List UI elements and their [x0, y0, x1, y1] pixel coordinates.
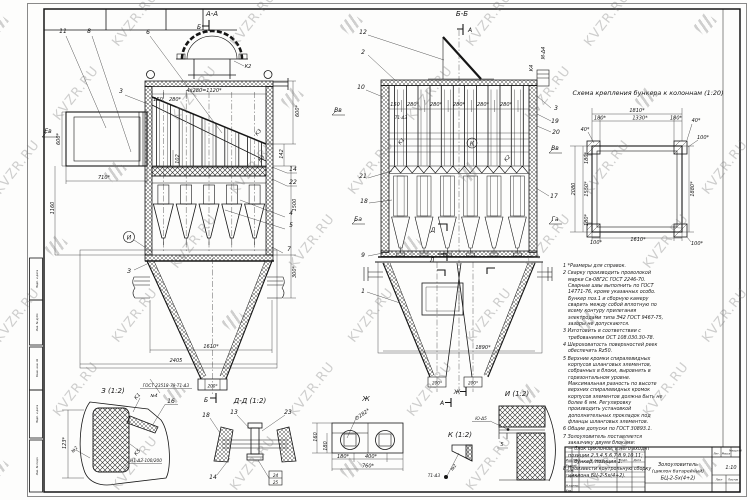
weld-label: №2 [449, 463, 458, 473]
note-item: 8 Произвести контрольную сборку циклона … [563, 467, 664, 480]
dim: 180* [594, 116, 607, 122]
detail-i: И (1:2) Ю-Δ5 5 [472, 390, 555, 481]
margin-stamp-column: Подп. и дата Инв. № дубл. Взам. инв. № П… [30, 258, 43, 492]
note-item: 3 Изготовить в соответствии с требования… [563, 329, 664, 342]
dim: 280* [453, 102, 466, 108]
dim: 123* [62, 436, 68, 449]
weld-label: №2 [70, 445, 79, 455]
cut-marker: А [439, 400, 444, 407]
dim: 2405 [170, 358, 183, 364]
dim: 200* [468, 381, 478, 386]
view-zh: Ж ∅282* 160 180 180* 400* 760* [312, 395, 403, 471]
dim: 760* [362, 464, 375, 470]
detail-dd: Д-Д (1:2) 18 13 23 14 24 25 [202, 397, 296, 485]
dim: 280* [500, 102, 513, 108]
hopper [133, 258, 285, 396]
dim: 200* [432, 381, 442, 386]
section-label: Б-Б [456, 10, 468, 18]
detail-label: И (1:2) [505, 390, 529, 398]
dim: 2080 [571, 183, 577, 196]
dim: 160 [313, 432, 319, 442]
mounting-scheme: Схема крепления бункера к колоннам (1:20… [570, 89, 724, 247]
note-item: 4 Шероховатость поверхностей реек обеспе… [563, 343, 664, 356]
margin-label: Подп. и дата [35, 269, 39, 288]
callout: 19 [551, 118, 559, 125]
dim: 40* [581, 127, 590, 133]
detail-label: З (1:2) [101, 387, 125, 395]
detail-marker: З [127, 268, 131, 275]
dim: 1610* [630, 237, 646, 243]
dim: 150 [153, 97, 163, 103]
level-marker: Ба [354, 216, 362, 223]
callout: 16 [167, 398, 175, 405]
dim: 100* [590, 240, 603, 246]
dim: 1330* [632, 116, 648, 122]
callout: 12 [359, 29, 367, 36]
level-marker: Ев [44, 128, 52, 135]
margin-label: Подп. и дата [35, 404, 39, 423]
weld-label: М-Δ4 [541, 47, 547, 60]
dim: 300* [292, 265, 298, 278]
cut-marker: А [467, 27, 472, 34]
inlet-duct [66, 112, 147, 166]
dim: 1880* [690, 181, 696, 197]
dim: 102 [175, 154, 181, 164]
tb-row-label: Н.контр. [566, 483, 579, 487]
tb-footer: Листов [727, 478, 738, 482]
callout: 6 [146, 29, 150, 36]
tb-footer: Лист [715, 478, 723, 482]
callout: 1 [361, 288, 365, 295]
callout: 4 [289, 210, 293, 217]
column-pads [587, 141, 687, 237]
drawing-sheet: Подп. и дата Инв. № дубл. Взам. инв. № П… [0, 0, 750, 500]
callout: 10 [357, 84, 365, 91]
weld-spec: №4 [149, 393, 157, 398]
weld-label: Ю-Δ5 [475, 416, 487, 421]
dim: 180* [584, 151, 590, 164]
weld-label: К5 [133, 448, 142, 457]
dim: 710* [98, 175, 111, 181]
weld-label: Т1-Δ3 [428, 473, 441, 478]
callout: 18 [202, 412, 210, 419]
dim: 142 [279, 149, 285, 159]
section-label: А-А [205, 10, 218, 18]
dim: 4x280=1120* [186, 88, 222, 94]
weld-label: К3 [254, 128, 263, 137]
dim: 280* [477, 102, 490, 108]
weld-label: К1 [133, 392, 142, 401]
level-marker: Вв [551, 145, 559, 152]
weld-spec: ГОСТ 23518-79-Т1-Δ3 [143, 383, 190, 388]
note-item: 7 Золоуловитель поставляется заказчику д… [563, 435, 664, 467]
callout: 11 [59, 28, 67, 35]
margin-label: Взам. инв. № [35, 359, 39, 377]
dim: 180 [323, 441, 329, 451]
detail-label: Д-Д (1:2) [233, 397, 267, 405]
weld-spec: Н1-Δ3-100/200 [130, 458, 162, 463]
dim: 1160 [50, 202, 56, 215]
detail-label: К (1:2) [448, 431, 472, 439]
cut-marker: Л [429, 257, 435, 264]
callout: 8 [87, 28, 91, 35]
weld-label: Т1-Δ3 [395, 115, 408, 120]
callout: 5 [289, 222, 293, 229]
callout: 21 [359, 173, 367, 180]
dim: 600* [56, 132, 62, 145]
weld-label: К2 [245, 64, 252, 70]
callout: 17 [550, 193, 558, 200]
detail-label: Ж [361, 395, 370, 403]
doc-title: БЦ-2-5х(4+2) [661, 476, 696, 482]
callout: 2 [361, 49, 365, 56]
dim: 280* [169, 97, 182, 103]
callout: 14 [209, 474, 217, 481]
dim: 400* [365, 454, 378, 460]
detail-z: З (1:2) К1 16 К5 Н1-Δ3-100/200 123* №2 [62, 387, 178, 485]
callout: 25 [273, 480, 279, 485]
callout: 24 [273, 473, 279, 478]
level-marker: Вв [334, 107, 342, 114]
callout: 18 [360, 198, 368, 205]
callout: 9 [361, 252, 365, 259]
technical-notes: 1 *Размеры для справок. 2 Сварку произво… [563, 264, 664, 481]
scale-value: 1:10 [725, 465, 736, 471]
detail-marker: И [127, 235, 132, 242]
detail-k: К (1:2) Т1-Δ3 №2 [428, 431, 472, 479]
cut-marker: Б [197, 24, 201, 31]
level-marker: Га [551, 216, 558, 223]
scheme-title: Схема крепления бункера к колоннам (1:20… [572, 89, 723, 97]
callout: 22 [289, 179, 297, 186]
dim: 5 [500, 442, 503, 448]
dim: 100* [697, 135, 710, 141]
front-view: А-А Б К2 Ев [42, 10, 301, 404]
weld-label: К4 [529, 65, 535, 72]
dim: ∅282* [354, 407, 371, 422]
dim: 600* [295, 104, 301, 117]
callout: 3 [554, 105, 558, 112]
callout: 13 [230, 409, 238, 416]
note-item: 2 Сварку производить проволокой марки Св… [563, 271, 664, 328]
dim: 40* [692, 118, 701, 124]
dim: 180* [584, 213, 590, 226]
dim: 200* [207, 384, 217, 389]
cut-marker: Б [204, 397, 208, 404]
callout: 7 [287, 246, 291, 253]
dim: 150 [390, 102, 400, 108]
detail-marker: К [470, 141, 475, 148]
tb-header: Масштаб [729, 449, 742, 453]
callout: 20 [552, 129, 560, 136]
dim: 1890* [475, 345, 491, 351]
note-item: 6 Общие допуски по ГОСТ 30893.1. [563, 427, 664, 433]
tb-header: Лит. [712, 452, 719, 456]
weld-label: К2 [503, 154, 512, 163]
note-item: 1 *Размеры для справок. [563, 264, 664, 270]
dim: 280* [407, 102, 420, 108]
tb-row-label: Утв. [566, 488, 572, 492]
dim: 1610* [203, 344, 219, 350]
dim: 180* [670, 116, 683, 122]
cut-marker: Д [430, 227, 436, 234]
note-item: 5 Верхние кромки спиралевидных корпусов … [563, 357, 664, 427]
dim: 280* [430, 102, 443, 108]
callout: 3 [119, 88, 123, 95]
margin-label: Инв. № подл. [35, 457, 39, 476]
view-marker: Ж [453, 389, 461, 396]
callout: 23 [284, 409, 292, 416]
callout: 14 [289, 166, 297, 173]
dim: 1810* [629, 108, 645, 114]
weld-label: К1 [397, 137, 406, 146]
dim: 100* [691, 241, 704, 247]
dim: 180* [337, 454, 350, 460]
margin-label: Инв. № дубл. [35, 313, 39, 332]
dim: 1550* [584, 181, 590, 197]
section-view: Б-Б А М-Δ4 К4 Т1-Δ3 К1 К К2 [332, 10, 562, 407]
